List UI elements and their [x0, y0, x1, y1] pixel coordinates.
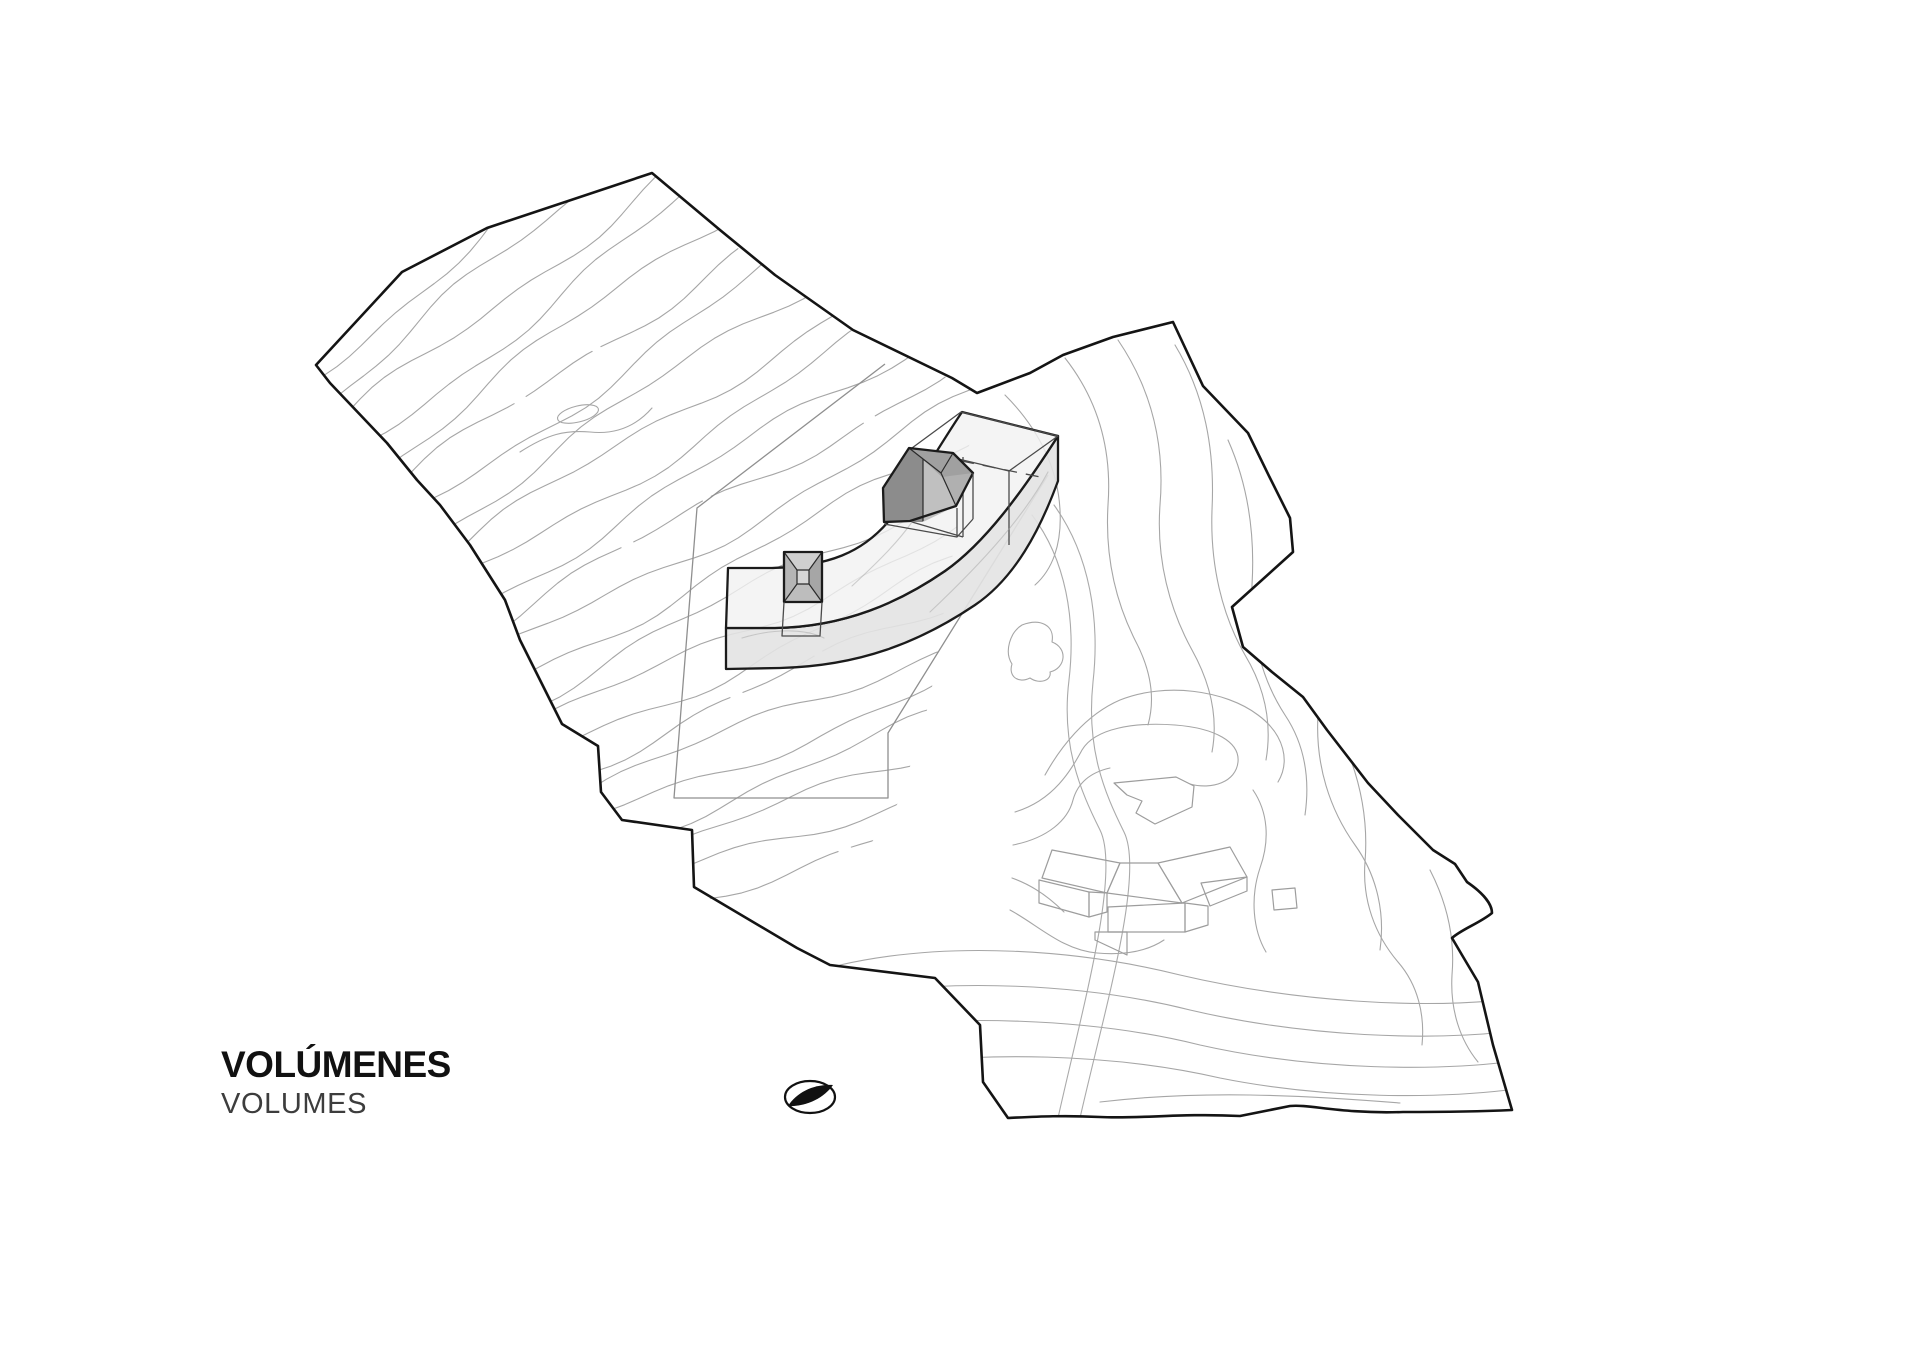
- north-arrow-icon: [785, 1081, 835, 1113]
- contour-line: [315, 0, 828, 417]
- existing-shed: [1272, 888, 1297, 910]
- title-block: VOLÚMENES VOLUMES: [221, 1046, 451, 1119]
- site-boundary: [316, 173, 1512, 1118]
- existing-house-roof-left: [1042, 850, 1120, 893]
- contour-line: [327, 24, 859, 435]
- page-subtitle: VOLUMES: [221, 1089, 451, 1119]
- contour-line: [659, 670, 1299, 876]
- contour-line: [629, 593, 1254, 840]
- page-title: VOLÚMENES: [221, 1046, 451, 1085]
- proposed-volumes: [726, 412, 1058, 669]
- contour-details-left: [520, 401, 652, 452]
- closed-contour-loop: [556, 401, 601, 427]
- existing-terrace: [1114, 777, 1194, 824]
- page-canvas: VOLÚMENES VOLUMES: [0, 0, 1920, 1358]
- contour-line: [389, 150, 952, 517]
- existing-house-roof-right: [1158, 847, 1247, 903]
- contour-line: [342, 57, 884, 454]
- contour-lines-left-slope: [295, 0, 1317, 902]
- existing-buildings: [1039, 777, 1297, 955]
- site-plan-drawing: [0, 0, 1920, 1358]
- contour-line: [295, 0, 813, 391]
- path-line: [1032, 515, 1106, 1118]
- existing-house-roof-center: [1107, 863, 1182, 903]
